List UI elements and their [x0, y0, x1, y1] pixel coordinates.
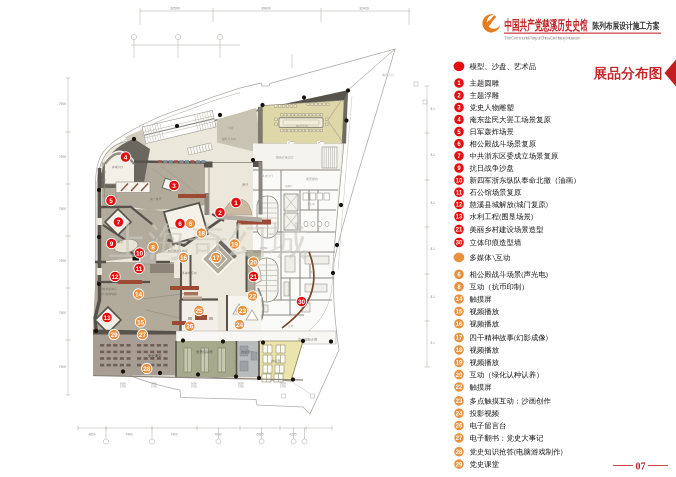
- svg-text:20: 20: [456, 373, 463, 379]
- svg-text:7900: 7900: [59, 207, 66, 211]
- svg-text:24: 24: [236, 322, 244, 329]
- svg-text:14: 14: [135, 291, 143, 298]
- svg-text:8: 8: [151, 244, 155, 251]
- svg-text:29: 29: [456, 462, 463, 468]
- svg-text:8.1: 8.1: [431, 295, 436, 299]
- svg-text:1: 1: [234, 200, 238, 207]
- svg-text:17: 17: [212, 255, 220, 262]
- svg-text:14: 14: [456, 297, 463, 303]
- svg-text:07: 07: [636, 461, 646, 472]
- svg-text:9: 9: [110, 241, 114, 248]
- svg-text:21: 21: [456, 228, 463, 234]
- svg-text:7900: 7900: [59, 311, 66, 315]
- svg-text:21: 21: [250, 274, 258, 281]
- svg-text:32400: 32400: [359, 7, 369, 11]
- svg-text:3700: 3700: [191, 385, 197, 389]
- svg-text:18: 18: [456, 348, 463, 354]
- svg-text:11: 11: [136, 266, 143, 273]
- svg-text:7400: 7400: [170, 433, 177, 437]
- svg-text:15: 15: [137, 319, 145, 326]
- svg-text:4: 4: [124, 154, 128, 161]
- svg-text:12: 12: [456, 203, 463, 209]
- svg-text:22: 22: [249, 293, 257, 300]
- svg-text:3: 3: [172, 183, 176, 190]
- svg-text:24: 24: [456, 411, 463, 417]
- svg-text:20: 20: [250, 259, 258, 266]
- svg-text:27: 27: [139, 332, 147, 339]
- svg-text:19: 19: [456, 360, 463, 366]
- svg-text:The Communist Party of China C: The Communist Party of China Cixi Histor…: [505, 36, 581, 41]
- svg-text:10: 10: [136, 250, 144, 257]
- svg-text:23: 23: [456, 399, 463, 405]
- svg-text:7000: 7000: [214, 433, 221, 437]
- svg-text:10: 10: [456, 178, 463, 184]
- svg-text:12: 12: [111, 274, 119, 281]
- svg-text:5: 5: [109, 198, 113, 205]
- svg-text:19: 19: [231, 241, 239, 248]
- svg-text:7900: 7900: [59, 365, 66, 369]
- svg-text:3700: 3700: [238, 385, 244, 389]
- svg-text:6: 6: [189, 221, 193, 228]
- svg-text:8.1: 8.1: [431, 107, 436, 111]
- svg-text:7900: 7900: [59, 259, 66, 263]
- svg-text:3700: 3700: [120, 385, 126, 389]
- svg-text:26: 26: [186, 324, 194, 331]
- svg-text:4600: 4600: [88, 433, 95, 437]
- svg-text:17: 17: [456, 336, 463, 342]
- svg-text:8.1: 8.1: [431, 341, 436, 345]
- svg-text:29: 29: [110, 332, 118, 339]
- svg-text:7900: 7900: [59, 155, 66, 159]
- svg-text:2: 2: [218, 210, 222, 217]
- svg-text:28: 28: [456, 450, 463, 456]
- svg-text:8.1: 8.1: [431, 247, 436, 251]
- svg-text:7400: 7400: [125, 433, 132, 437]
- svg-text:26: 26: [456, 424, 463, 430]
- svg-text:6: 6: [178, 221, 182, 228]
- svg-text:30: 30: [298, 299, 306, 306]
- svg-text:15: 15: [456, 310, 463, 316]
- svg-text:7: 7: [117, 219, 121, 226]
- svg-text:8.1: 8.1: [431, 201, 436, 205]
- svg-text:6600: 6600: [256, 433, 263, 437]
- svg-text:26500: 26500: [170, 7, 180, 11]
- svg-text:8.1: 8.1: [431, 153, 436, 157]
- svg-text:23: 23: [239, 308, 247, 315]
- svg-text:3700: 3700: [280, 385, 286, 389]
- svg-text:27: 27: [456, 436, 463, 442]
- svg-text:3700: 3700: [151, 385, 157, 389]
- svg-text:25: 25: [195, 308, 203, 315]
- svg-text:11: 11: [456, 190, 463, 196]
- svg-text:30: 30: [456, 241, 463, 247]
- svg-text:13: 13: [456, 215, 463, 221]
- svg-text:4200: 4200: [289, 433, 296, 437]
- svg-text:16: 16: [180, 255, 188, 262]
- svg-text:7900: 7900: [59, 102, 66, 106]
- svg-text:39600: 39600: [261, 7, 271, 11]
- svg-text:28: 28: [143, 366, 151, 373]
- svg-text:13: 13: [103, 315, 111, 322]
- svg-text:16: 16: [456, 322, 463, 328]
- svg-text:18: 18: [198, 230, 206, 237]
- svg-text:22: 22: [456, 385, 463, 391]
